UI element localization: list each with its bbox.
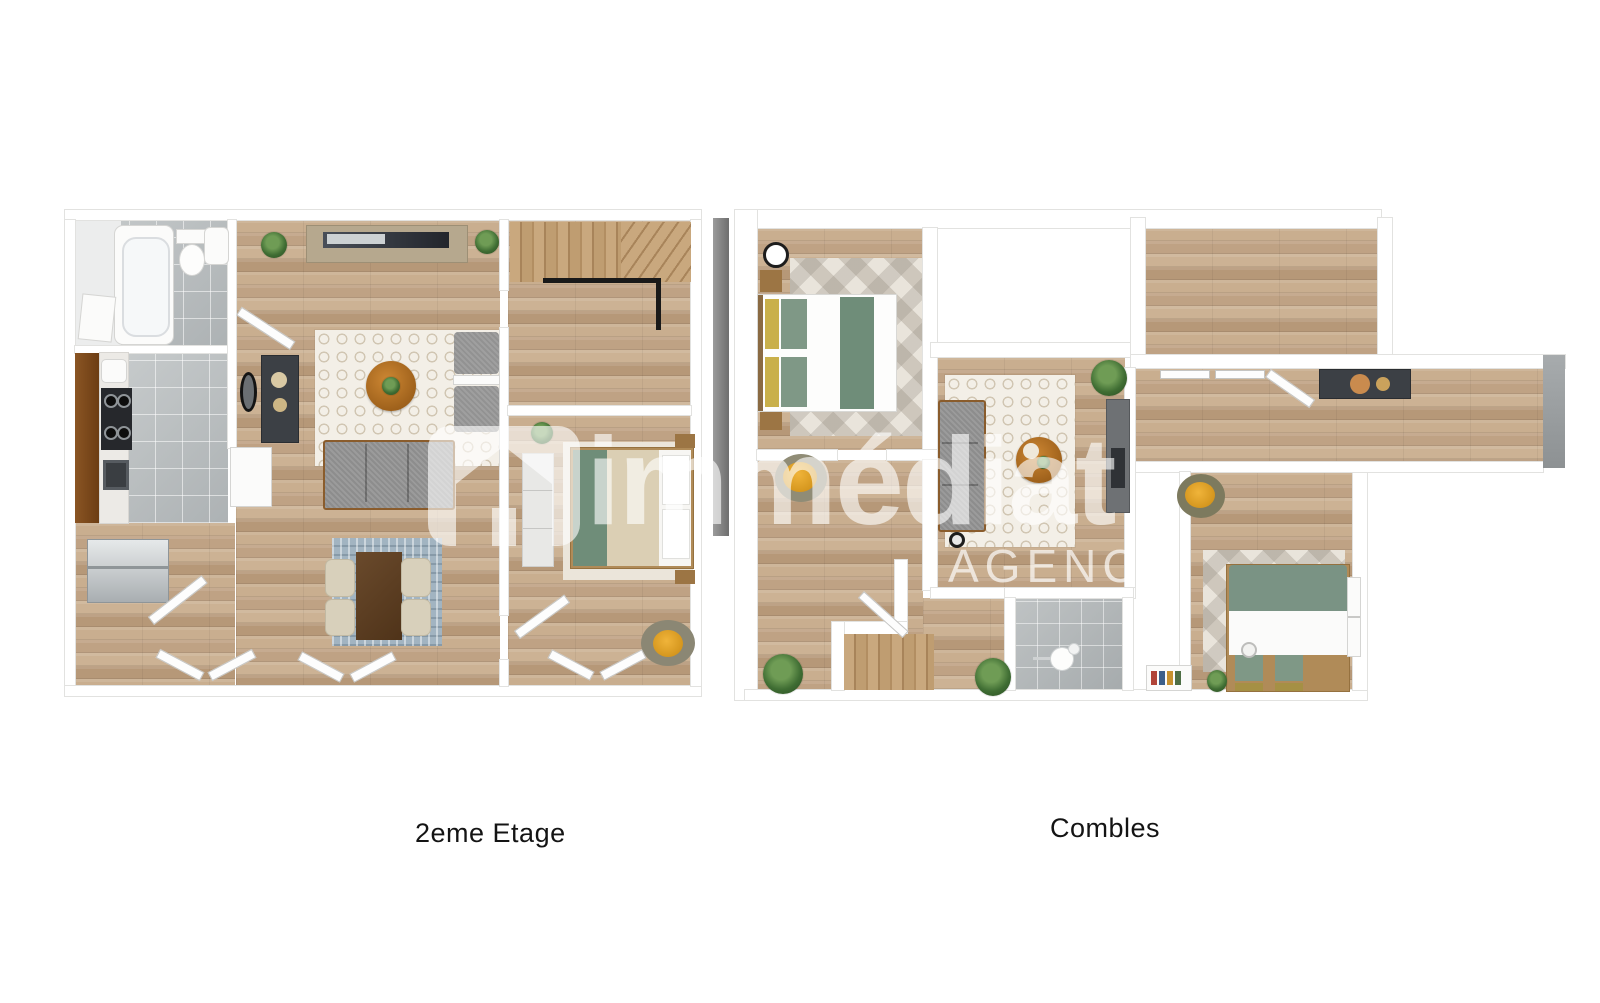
bathtub-basin bbox=[122, 237, 170, 337]
wall bbox=[1131, 355, 1565, 368]
wall bbox=[931, 343, 1131, 357]
tv-cabinet-panel bbox=[1111, 448, 1125, 488]
stair-railing bbox=[656, 278, 661, 330]
decor-bowl bbox=[271, 372, 287, 388]
built-in-closet bbox=[231, 448, 271, 506]
plant bbox=[475, 230, 499, 254]
floor-plan-image: immédiat AGENCE 2eme Etage Combles bbox=[0, 0, 1600, 1003]
toilet-tank bbox=[177, 230, 205, 243]
media-cabinet bbox=[262, 356, 298, 442]
fridge bbox=[88, 540, 168, 602]
open-door-panel bbox=[1215, 370, 1265, 379]
plan-side-wall-shadow bbox=[713, 218, 729, 536]
sofa bbox=[323, 440, 455, 510]
console-table bbox=[1320, 370, 1410, 398]
table-plate bbox=[1023, 443, 1039, 459]
floor-label-attic: Combles bbox=[1050, 813, 1160, 844]
sofa-cushion-divider bbox=[942, 442, 978, 444]
bed-blanket bbox=[1229, 565, 1347, 611]
sofa-cushion-divider bbox=[407, 444, 409, 502]
wall bbox=[500, 220, 508, 290]
stair-step-wall bbox=[832, 622, 844, 690]
shower-room-floor bbox=[1015, 598, 1123, 690]
wall bbox=[65, 210, 701, 220]
sofa-cushion-divider bbox=[365, 444, 367, 502]
bathtub bbox=[115, 226, 173, 344]
table-plant bbox=[382, 377, 400, 395]
floor-plan-attic bbox=[735, 210, 1565, 700]
burner bbox=[117, 394, 131, 408]
wall bbox=[887, 450, 937, 460]
stove bbox=[101, 388, 132, 450]
stair-railing bbox=[543, 278, 661, 283]
pillow bbox=[1275, 655, 1303, 681]
empty-room-floor bbox=[1145, 228, 1378, 355]
burner bbox=[117, 426, 131, 440]
dining-chair bbox=[402, 559, 430, 596]
yellow-pouf bbox=[653, 630, 683, 657]
bathroom-sink bbox=[205, 228, 228, 264]
plant bbox=[975, 658, 1011, 696]
wall bbox=[1131, 462, 1543, 472]
wall bbox=[75, 346, 228, 353]
dining-table bbox=[356, 552, 402, 640]
burner bbox=[104, 394, 118, 408]
wall bbox=[1378, 218, 1392, 368]
mirror bbox=[240, 372, 257, 412]
dining-chair bbox=[326, 600, 354, 635]
bed-duvet bbox=[607, 450, 659, 566]
pillow bbox=[781, 357, 807, 407]
oven bbox=[103, 460, 129, 490]
floor-lamp bbox=[763, 242, 789, 268]
dining-chair bbox=[326, 560, 354, 596]
window-pane-line bbox=[1348, 616, 1360, 618]
decor-tray bbox=[1376, 377, 1390, 391]
shower-arm bbox=[1033, 657, 1051, 660]
pillow bbox=[1235, 655, 1263, 681]
pillow bbox=[765, 299, 779, 349]
floor-label-second-floor: 2eme Etage bbox=[415, 818, 566, 849]
wardrobe bbox=[523, 454, 553, 566]
staircase-steps bbox=[844, 634, 934, 690]
wall bbox=[735, 210, 757, 700]
wardrobe-line bbox=[523, 528, 553, 529]
nightstand bbox=[760, 408, 782, 430]
nightstand bbox=[675, 434, 695, 448]
bed-runner bbox=[840, 297, 874, 409]
staircase-winders bbox=[621, 222, 691, 282]
yellow-pouf bbox=[1185, 482, 1215, 508]
books bbox=[1167, 671, 1173, 685]
wall bbox=[923, 228, 937, 452]
armchair bbox=[454, 386, 499, 432]
decor-tray bbox=[1350, 374, 1370, 394]
wall bbox=[923, 460, 937, 590]
plant bbox=[261, 232, 287, 258]
wall bbox=[500, 328, 508, 615]
wall bbox=[745, 690, 1367, 700]
wall bbox=[65, 686, 701, 696]
fridge-divider bbox=[88, 566, 168, 569]
toilet-bowl bbox=[179, 244, 205, 276]
sofa-cushion-divider bbox=[942, 484, 978, 486]
wall bbox=[1005, 588, 1133, 598]
shower-head-knob bbox=[1069, 644, 1079, 654]
open-door-panel bbox=[1160, 370, 1210, 379]
wall bbox=[1131, 218, 1145, 368]
decor-bowl bbox=[273, 398, 287, 412]
sofa bbox=[938, 400, 986, 532]
bed-runner bbox=[573, 450, 607, 566]
window bbox=[1348, 578, 1360, 656]
double-bed bbox=[758, 295, 896, 411]
pillow bbox=[1275, 683, 1303, 691]
yellow-armchair bbox=[783, 462, 817, 492]
pillow bbox=[1235, 683, 1263, 691]
wall bbox=[228, 220, 236, 448]
floor-plan-second-floor bbox=[65, 210, 701, 696]
side-shelf bbox=[454, 376, 499, 384]
armchair bbox=[454, 332, 499, 374]
wall bbox=[1123, 598, 1133, 690]
tv-console bbox=[307, 226, 467, 262]
headboard bbox=[758, 295, 763, 411]
bathroom-shelf bbox=[79, 294, 115, 341]
wall bbox=[745, 210, 1381, 228]
tv-cabinet bbox=[1107, 400, 1129, 512]
table-plant bbox=[1037, 456, 1050, 469]
kitchen-sink bbox=[102, 360, 126, 382]
burner bbox=[104, 426, 118, 440]
corridor-end-wall bbox=[1543, 355, 1565, 468]
kitchen-cabinets bbox=[75, 353, 100, 523]
kitchen-floor bbox=[128, 353, 228, 523]
double-bed bbox=[571, 448, 693, 568]
pillow bbox=[663, 456, 689, 504]
wardrobe-line bbox=[523, 490, 553, 491]
pillow bbox=[781, 299, 807, 349]
plant bbox=[531, 422, 553, 444]
plant bbox=[1207, 670, 1227, 692]
nightstand bbox=[760, 270, 782, 292]
books bbox=[1175, 671, 1181, 685]
nightstand bbox=[675, 570, 695, 584]
floor-lamp bbox=[949, 532, 965, 548]
wall bbox=[500, 660, 508, 686]
books bbox=[1151, 671, 1157, 685]
pillow bbox=[663, 510, 689, 558]
wall bbox=[508, 406, 691, 415]
wall bbox=[65, 220, 75, 696]
pillow bbox=[765, 357, 779, 407]
tv-console-shelf bbox=[327, 234, 385, 244]
dining-chair bbox=[402, 600, 430, 635]
bookshelf bbox=[1147, 666, 1191, 690]
floor-lamp bbox=[1241, 642, 1257, 658]
double-bed bbox=[1227, 565, 1349, 691]
plant bbox=[1091, 360, 1127, 396]
books bbox=[1159, 671, 1165, 685]
plant bbox=[763, 654, 803, 694]
